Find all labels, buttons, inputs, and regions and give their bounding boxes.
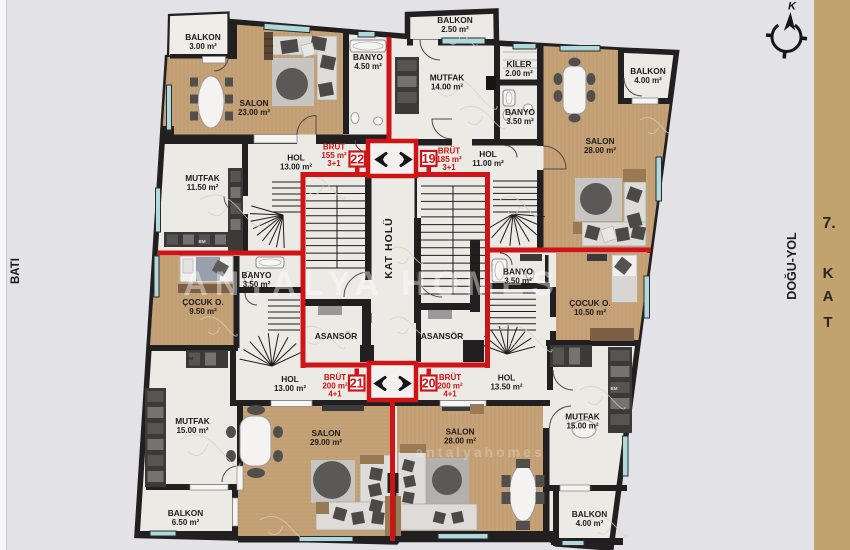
svg-text:SALON: SALON xyxy=(445,427,474,437)
svg-text:BM: BM xyxy=(611,386,618,391)
svg-text:21: 21 xyxy=(350,377,364,391)
svg-text:4+1: 4+1 xyxy=(443,390,457,399)
svg-text:11.00 m²: 11.00 m² xyxy=(472,159,504,168)
svg-text:MUTFAK: MUTFAK xyxy=(175,416,210,426)
svg-text:13.50 m²: 13.50 m² xyxy=(490,383,522,392)
svg-text:DOĞU-YOL: DOĞU-YOL xyxy=(784,232,799,300)
svg-text:K: K xyxy=(788,1,797,13)
svg-text:BALKON: BALKON xyxy=(437,15,473,25)
svg-text:28.00 m²: 28.00 m² xyxy=(444,437,476,446)
svg-text:K: K xyxy=(823,265,834,282)
svg-text:3.50 m²: 3.50 m² xyxy=(243,280,271,289)
svg-text:23.00 m²: 23.00 m² xyxy=(238,108,270,117)
svg-text:ÇOCUK O.: ÇOCUK O. xyxy=(569,298,611,308)
svg-text:SALON: SALON xyxy=(311,428,340,438)
svg-text:ASANSÖR: ASANSÖR xyxy=(421,331,464,341)
svg-text:BM: BM xyxy=(199,239,206,244)
svg-text:KİLER: KİLER xyxy=(507,59,532,69)
svg-text:4.00 m²: 4.00 m² xyxy=(576,519,604,528)
svg-text:A: A xyxy=(823,288,834,305)
svg-text:13.00 m²: 13.00 m² xyxy=(274,384,306,393)
svg-text:HOL: HOL xyxy=(479,149,497,159)
svg-text:MUTFAK: MUTFAK xyxy=(430,73,465,83)
svg-text:BATI: BATI xyxy=(10,258,22,284)
svg-text:13.00 m²: 13.00 m² xyxy=(280,163,312,172)
svg-text:3.50 m²: 3.50 m² xyxy=(506,117,534,126)
svg-text:BANYO: BANYO xyxy=(242,270,273,280)
svg-text:8M: 8M xyxy=(187,356,194,361)
svg-text:ASANSÖR: ASANSÖR xyxy=(315,331,358,341)
svg-text:BALKON: BALKON xyxy=(168,508,204,518)
svg-text:3.50 m²: 3.50 m² xyxy=(504,277,532,286)
svg-text:SALON: SALON xyxy=(585,136,614,146)
svg-text:BALKON: BALKON xyxy=(572,509,608,519)
svg-text:4+1: 4+1 xyxy=(328,390,342,399)
svg-text:7.: 7. xyxy=(822,215,835,232)
svg-text:3+1: 3+1 xyxy=(327,159,341,168)
svg-text:BANYO: BANYO xyxy=(505,107,536,117)
svg-text:BALKON: BALKON xyxy=(185,32,221,42)
svg-text:HOL: HOL xyxy=(281,374,299,384)
svg-text:KAT HOLÜ: KAT HOLÜ xyxy=(382,217,395,278)
svg-text:SALON: SALON xyxy=(239,98,268,108)
svg-text:BANYO: BANYO xyxy=(503,267,534,277)
svg-text:HOL: HOL xyxy=(287,153,305,163)
svg-text:28.00 m²: 28.00 m² xyxy=(584,146,616,155)
svg-text:BALKON: BALKON xyxy=(630,66,666,76)
svg-text:6.50 m²: 6.50 m² xyxy=(172,518,200,527)
svg-text:9.50 m²: 9.50 m² xyxy=(189,307,217,316)
svg-text:19: 19 xyxy=(422,152,436,166)
svg-text:3.00 m²: 3.00 m² xyxy=(189,42,217,51)
svg-text:29.00 m²: 29.00 m² xyxy=(310,438,342,447)
svg-text:11.50 m²: 11.50 m² xyxy=(187,183,219,192)
svg-text:4.00 m²: 4.00 m² xyxy=(634,76,662,85)
svg-text:2.00 m²: 2.00 m² xyxy=(505,69,533,78)
svg-text:14.00 m²: 14.00 m² xyxy=(431,83,463,92)
svg-text:3+1: 3+1 xyxy=(442,163,456,172)
svg-text:antalyahomes: antalyahomes xyxy=(415,444,544,460)
svg-text:ÇOCUK O.: ÇOCUK O. xyxy=(182,297,224,307)
svg-text:T: T xyxy=(823,314,832,331)
svg-text:10.50 m²: 10.50 m² xyxy=(574,308,606,317)
svg-text:4.50 m²: 4.50 m² xyxy=(354,62,382,71)
svg-text:20: 20 xyxy=(422,377,436,391)
svg-text:15.00 m²: 15.00 m² xyxy=(176,426,208,435)
svg-text:15.00 m²: 15.00 m² xyxy=(566,422,598,431)
svg-text:MUTFAK: MUTFAK xyxy=(185,173,220,183)
svg-text:22: 22 xyxy=(350,153,364,167)
svg-text:2.50 m²: 2.50 m² xyxy=(441,25,469,34)
svg-text:HOL: HOL xyxy=(498,373,516,383)
svg-text:BANYO: BANYO xyxy=(353,52,384,62)
svg-text:MUTFAK: MUTFAK xyxy=(565,412,600,422)
